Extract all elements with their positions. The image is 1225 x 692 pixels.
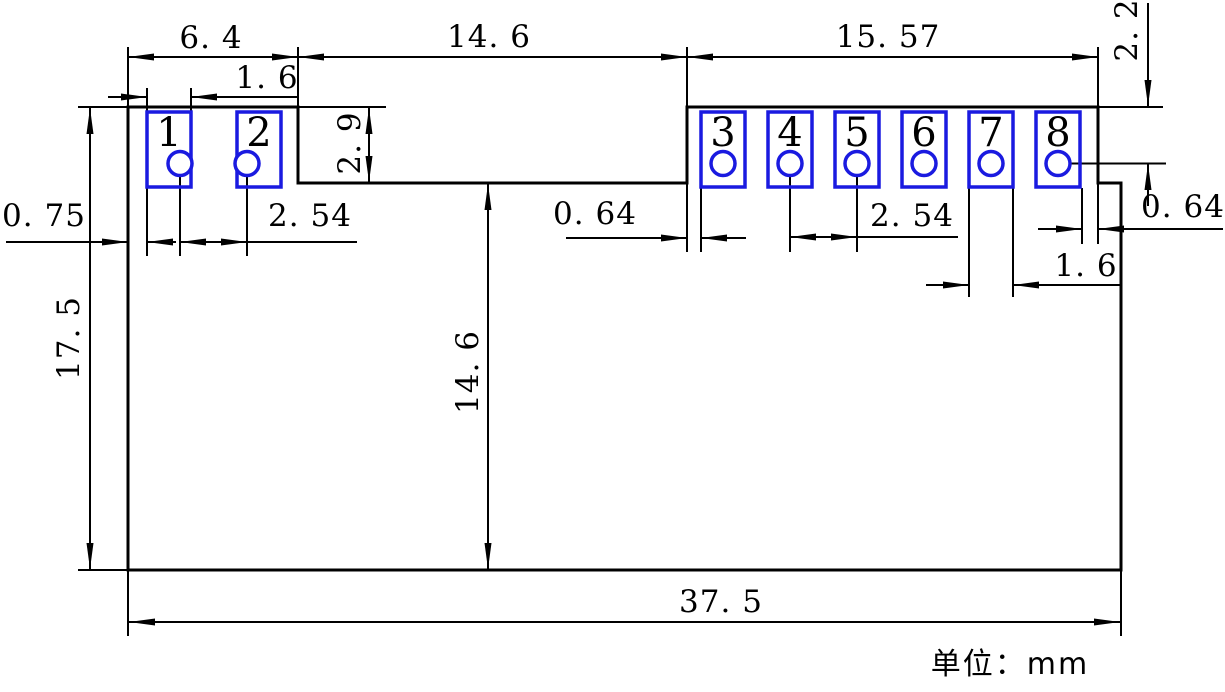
label-pad-pitch-right: 2. 54: [870, 198, 954, 234]
pad-number: 7: [978, 110, 1003, 156]
dimension-labels: 6. 4 14. 6 15. 57 1. 6 2. 2 2. 9 0. 75 2…: [2, 0, 1225, 682]
label-left-edge-to-pad1: 0. 75: [2, 198, 86, 234]
pad-8: 8: [1036, 110, 1080, 187]
label-body-height: 17. 5: [51, 296, 87, 380]
label-notch-depth: 2. 9: [332, 111, 368, 174]
module-outline: [128, 107, 1121, 570]
unit-note: 单位：mm: [931, 647, 1089, 682]
pad-number: 1: [156, 110, 181, 156]
label-pad7-width: 1. 6: [1054, 248, 1117, 284]
label-pad-pitch-left: 2. 54: [268, 198, 352, 234]
pad-number: 2: [246, 110, 271, 156]
label-total-width: 37. 5: [679, 584, 763, 620]
pad-5: 5: [835, 110, 879, 187]
pads-group: 12345678: [147, 110, 1080, 187]
pad-2: 2: [235, 110, 281, 187]
pad-1: 1: [147, 110, 192, 187]
label-top-to-pin8-center: 2. 2: [1109, 0, 1145, 62]
label-pad1-width: 1. 6: [235, 60, 298, 96]
drawing-canvas: 12345678 6. 4 14. 6 15. 57 1. 6 2. 2 2. …: [0, 0, 1225, 692]
dimension-lines: [6, 3, 1223, 622]
label-pad8-to-edge: 0. 64: [1141, 189, 1225, 225]
pad-4: 4: [768, 110, 812, 187]
pad-number: 4: [777, 110, 802, 156]
label-notch-to-bottom: 14. 6: [450, 330, 486, 414]
pad-number: 3: [710, 110, 735, 156]
pad-6: 6: [902, 110, 946, 187]
pad-number: 6: [911, 110, 936, 156]
label-top-middle-width: 14. 6: [447, 19, 531, 55]
pad-7: 7: [969, 110, 1013, 187]
label-top-right-width: 15. 57: [836, 19, 941, 55]
pad-3: 3: [701, 110, 745, 187]
label-edge-to-pad3: 0. 64: [553, 196, 637, 232]
pad-number: 5: [844, 110, 869, 156]
label-top-left-width: 6. 4: [179, 20, 242, 56]
dimension-drawing: 12345678 6. 4 14. 6 15. 57 1. 6 2. 2 2. …: [0, 0, 1225, 692]
pad-number: 8: [1045, 110, 1070, 156]
